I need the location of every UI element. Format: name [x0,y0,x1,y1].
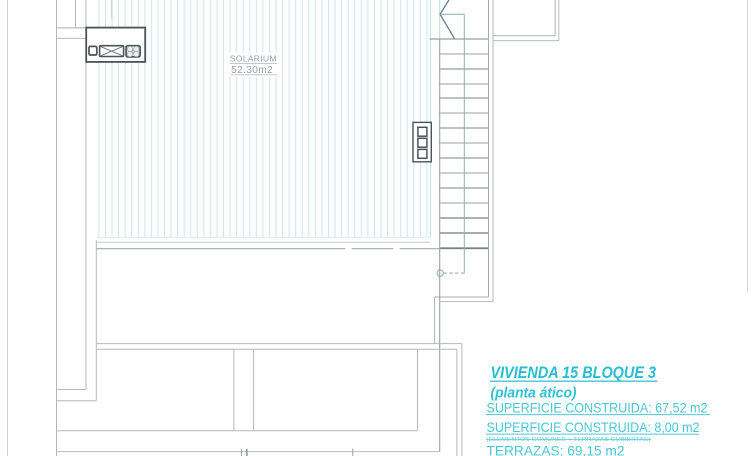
svg-text:SUPERFICIE CONSTRUIDA: 8,00 m2: SUPERFICIE CONSTRUIDA: 8,00 m2 [487,420,700,435]
svg-text:VIVIENDA 15 BLOQUE 3: VIVIENDA 15 BLOQUE 3 [491,363,657,382]
svg-text:TERRAZAS: 69,15 m2: TERRAZAS: 69,15 m2 [487,443,625,456]
svg-text:SUPERFICIE CONSTRUIDA: 67,52 m: SUPERFICIE CONSTRUIDA: 67,52 m2 [487,400,708,415]
svg-text:SOLARIUM: SOLARIUM [230,54,277,64]
svg-text:(planta ático): (planta ático) [491,384,577,401]
svg-text:52.30m2: 52.30m2 [231,65,273,76]
